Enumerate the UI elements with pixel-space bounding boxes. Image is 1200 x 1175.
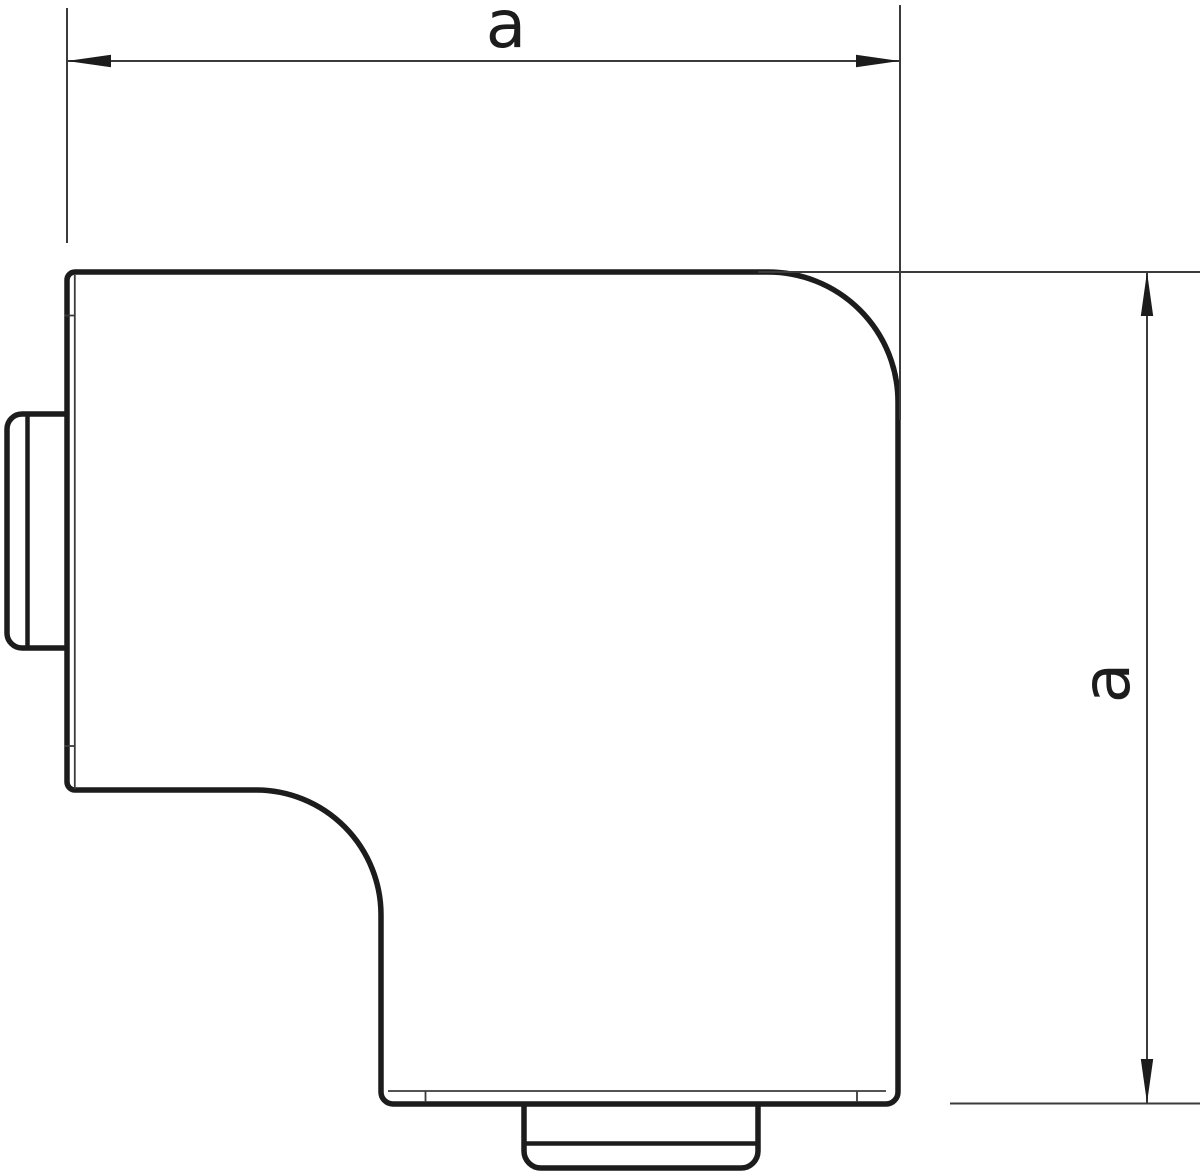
part-body-outline	[67, 272, 898, 1104]
vertical-dimension-label: a	[1068, 663, 1145, 703]
flat-angle-technical-drawing: a a	[0, 0, 1200, 1175]
left-connector-tab	[7, 414, 67, 648]
horizontal-dimension-right-arrowhead-icon	[856, 55, 900, 67]
horizontal-dimension-label: a	[486, 0, 526, 63]
vertical-dimension-bottom-arrowhead-icon	[1141, 1059, 1153, 1103]
technical-drawing-page: a a	[0, 0, 1200, 1175]
bottom-connector-tab-outline	[524, 1104, 758, 1168]
vertical-dimension-top-arrowhead-icon	[1141, 272, 1153, 316]
horizontal-dimension-left-arrowhead-icon	[67, 55, 111, 67]
bottom-connector-tab	[524, 1104, 758, 1168]
left-connector-tab-outline	[7, 414, 67, 648]
